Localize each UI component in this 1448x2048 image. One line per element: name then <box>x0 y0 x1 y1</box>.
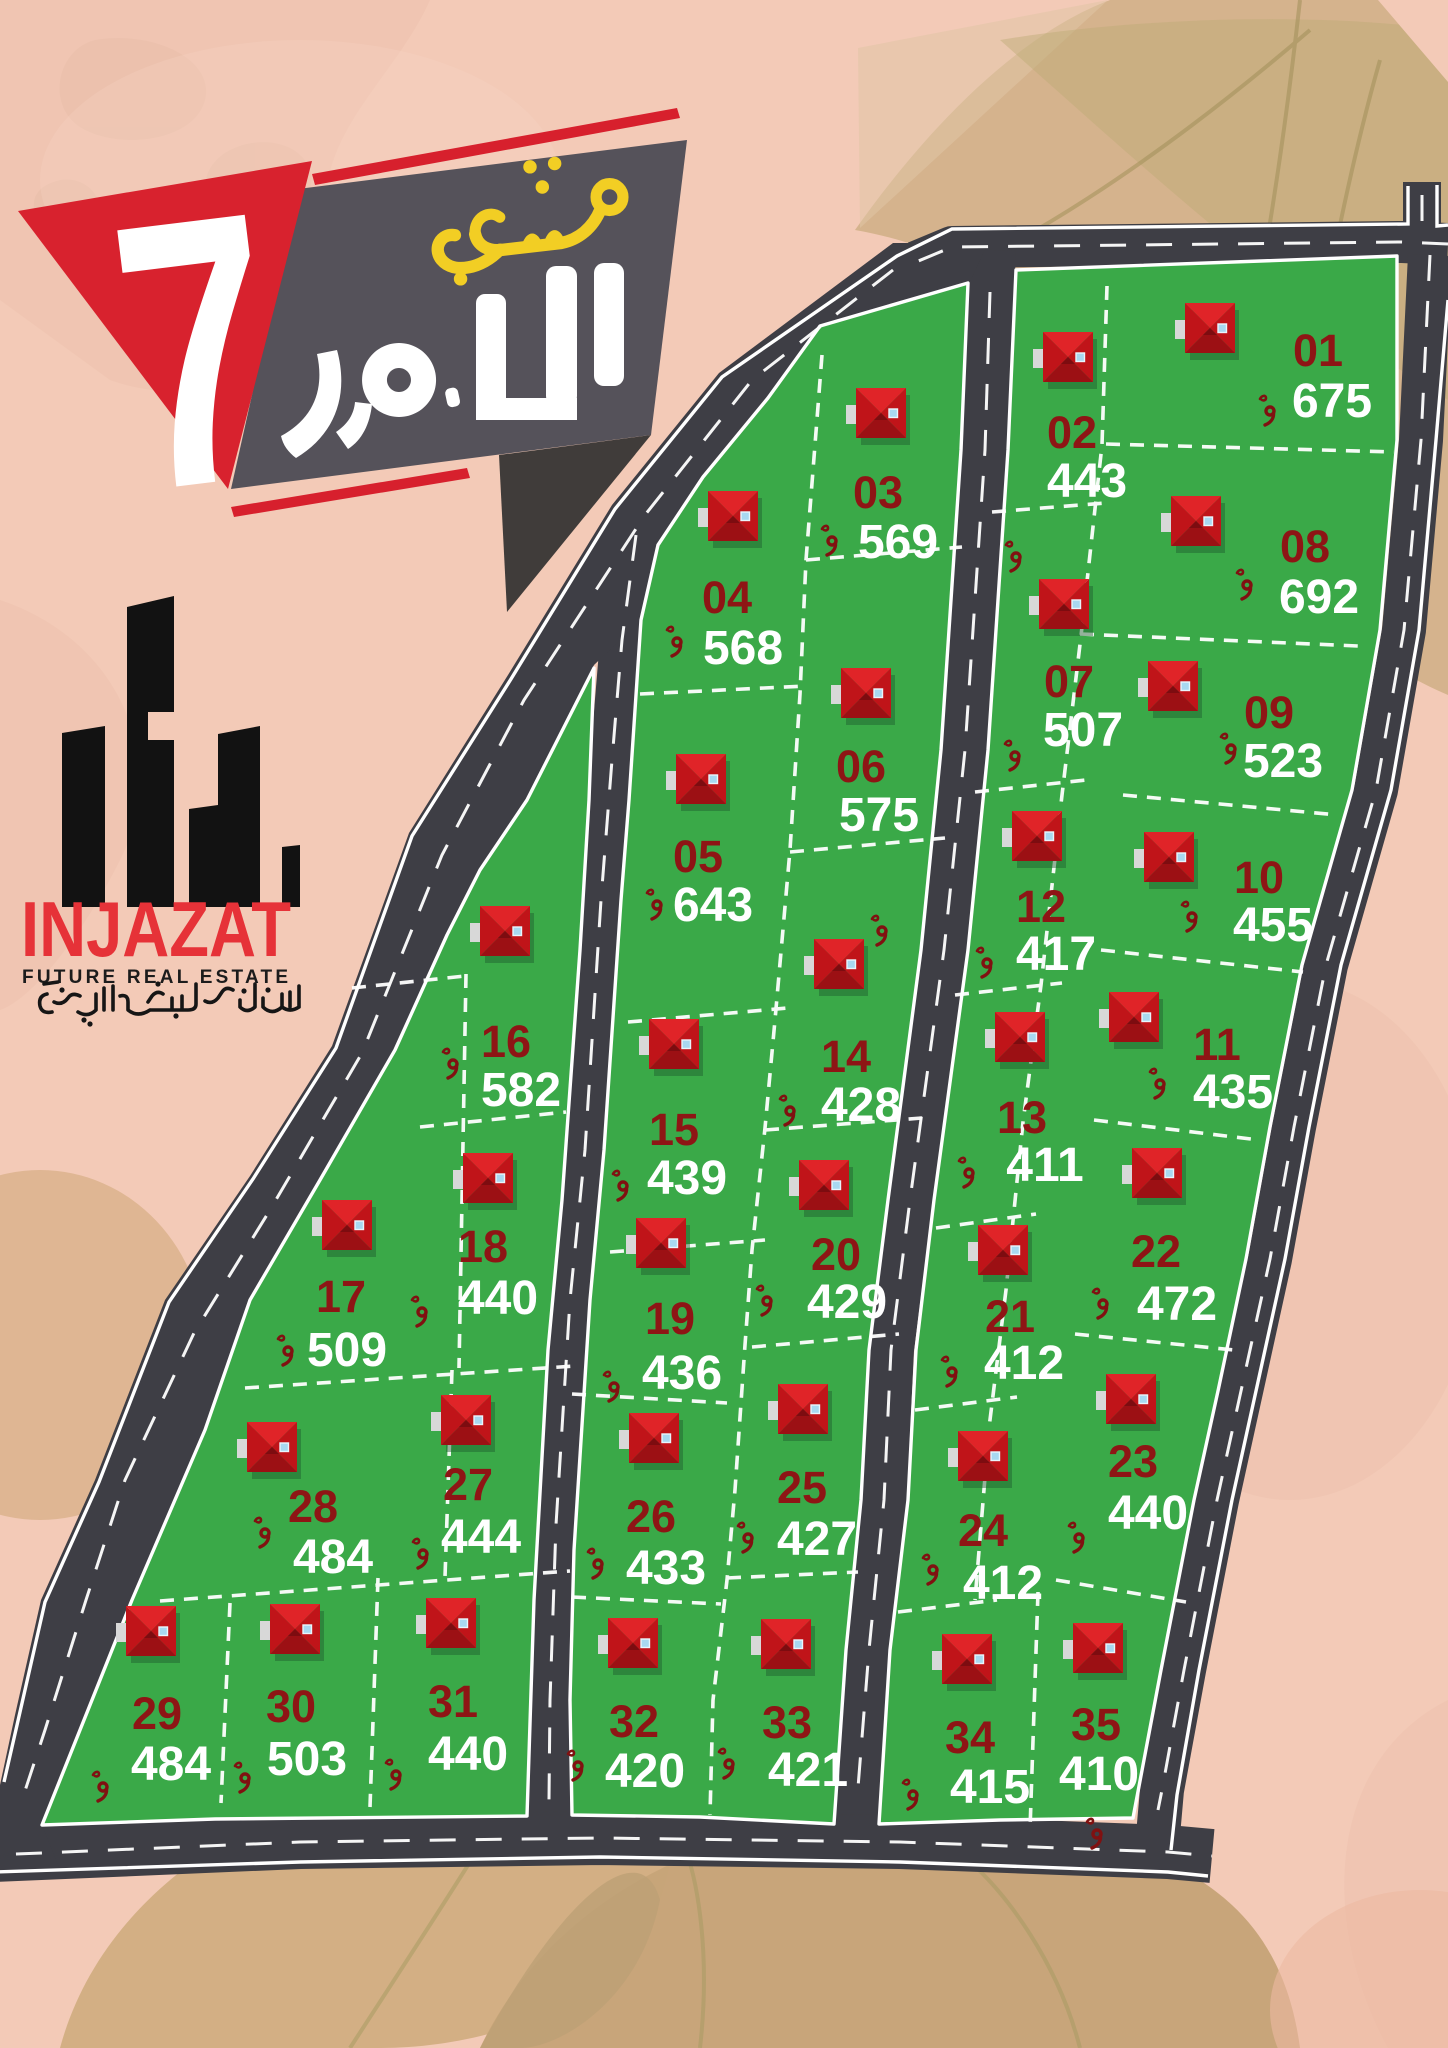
svg-text:568: 568 <box>703 622 783 675</box>
svg-text:30: 30 <box>266 1681 316 1732</box>
svg-text:06: 06 <box>836 741 886 792</box>
svg-text:582: 582 <box>481 1064 561 1117</box>
svg-text:27: 27 <box>443 1459 493 1510</box>
svg-text:417: 417 <box>1016 928 1096 981</box>
svg-text:15: 15 <box>649 1104 699 1155</box>
svg-text:12: 12 <box>1016 881 1066 932</box>
svg-text:19: 19 <box>645 1293 695 1344</box>
svg-text:428: 428 <box>821 1079 901 1132</box>
svg-text:443: 443 <box>1047 455 1127 508</box>
svg-text:415: 415 <box>950 1761 1030 1814</box>
svg-text:03: 03 <box>853 467 903 518</box>
svg-text:14: 14 <box>821 1031 871 1082</box>
svg-text:34: 34 <box>945 1712 995 1763</box>
svg-text:18: 18 <box>458 1221 508 1272</box>
svg-text:31: 31 <box>428 1676 478 1727</box>
svg-text:05: 05 <box>673 831 723 882</box>
svg-text:17: 17 <box>316 1271 366 1322</box>
svg-text:22: 22 <box>1131 1226 1181 1277</box>
svg-text:412: 412 <box>984 1337 1064 1390</box>
svg-text:436: 436 <box>642 1347 722 1400</box>
svg-text:427: 427 <box>777 1513 857 1566</box>
svg-text:24: 24 <box>958 1505 1008 1556</box>
svg-text:575: 575 <box>839 789 919 842</box>
svg-text:25: 25 <box>777 1462 827 1513</box>
svg-text:412: 412 <box>963 1557 1043 1610</box>
svg-text:509: 509 <box>307 1324 387 1377</box>
svg-text:439: 439 <box>647 1152 727 1205</box>
svg-text:455: 455 <box>1233 899 1313 952</box>
svg-text:20: 20 <box>811 1229 861 1280</box>
svg-text:FUTURE REAL ESTATE: FUTURE REAL ESTATE <box>22 967 288 988</box>
svg-text:440: 440 <box>428 1728 508 1781</box>
svg-text:08: 08 <box>1280 521 1330 572</box>
svg-text:675: 675 <box>1292 375 1372 428</box>
svg-text:503: 503 <box>267 1733 347 1786</box>
svg-text:10: 10 <box>1234 852 1284 903</box>
svg-text:507: 507 <box>1043 704 1123 757</box>
svg-text:484: 484 <box>293 1531 373 1584</box>
svg-text:692: 692 <box>1279 571 1359 624</box>
svg-text:07: 07 <box>1044 656 1094 707</box>
svg-text:523: 523 <box>1243 735 1323 788</box>
svg-text:643: 643 <box>673 879 753 932</box>
svg-text:04: 04 <box>702 572 752 623</box>
svg-text:11: 11 <box>1193 1019 1241 1070</box>
svg-text:33: 33 <box>762 1697 812 1748</box>
svg-text:35: 35 <box>1071 1699 1121 1750</box>
svg-text:440: 440 <box>458 1272 538 1325</box>
svg-text:28: 28 <box>288 1481 338 1532</box>
svg-text:435: 435 <box>1193 1066 1273 1119</box>
svg-text:484: 484 <box>131 1738 211 1791</box>
svg-text:01: 01 <box>1293 325 1343 376</box>
svg-text:429: 429 <box>807 1276 887 1329</box>
svg-text:444: 444 <box>441 1511 521 1564</box>
svg-text:420: 420 <box>605 1745 685 1798</box>
svg-text:26: 26 <box>626 1491 676 1542</box>
svg-text:13: 13 <box>997 1092 1047 1143</box>
svg-text:569: 569 <box>858 516 938 569</box>
svg-text:09: 09 <box>1244 687 1294 738</box>
svg-text:421: 421 <box>768 1744 848 1797</box>
svg-text:472: 472 <box>1137 1278 1217 1331</box>
svg-text:02: 02 <box>1047 407 1097 458</box>
svg-text:32: 32 <box>609 1696 659 1747</box>
svg-text:440: 440 <box>1108 1487 1188 1540</box>
svg-text:410: 410 <box>1059 1748 1139 1801</box>
svg-text:16: 16 <box>481 1016 531 1067</box>
svg-text:23: 23 <box>1108 1436 1158 1487</box>
svg-text:411: 411 <box>1006 1139 1083 1192</box>
svg-text:433: 433 <box>626 1542 706 1595</box>
svg-text:INJAZAT: INJAZAT <box>21 885 291 973</box>
svg-text:21: 21 <box>985 1291 1035 1342</box>
svg-text:29: 29 <box>132 1688 182 1739</box>
